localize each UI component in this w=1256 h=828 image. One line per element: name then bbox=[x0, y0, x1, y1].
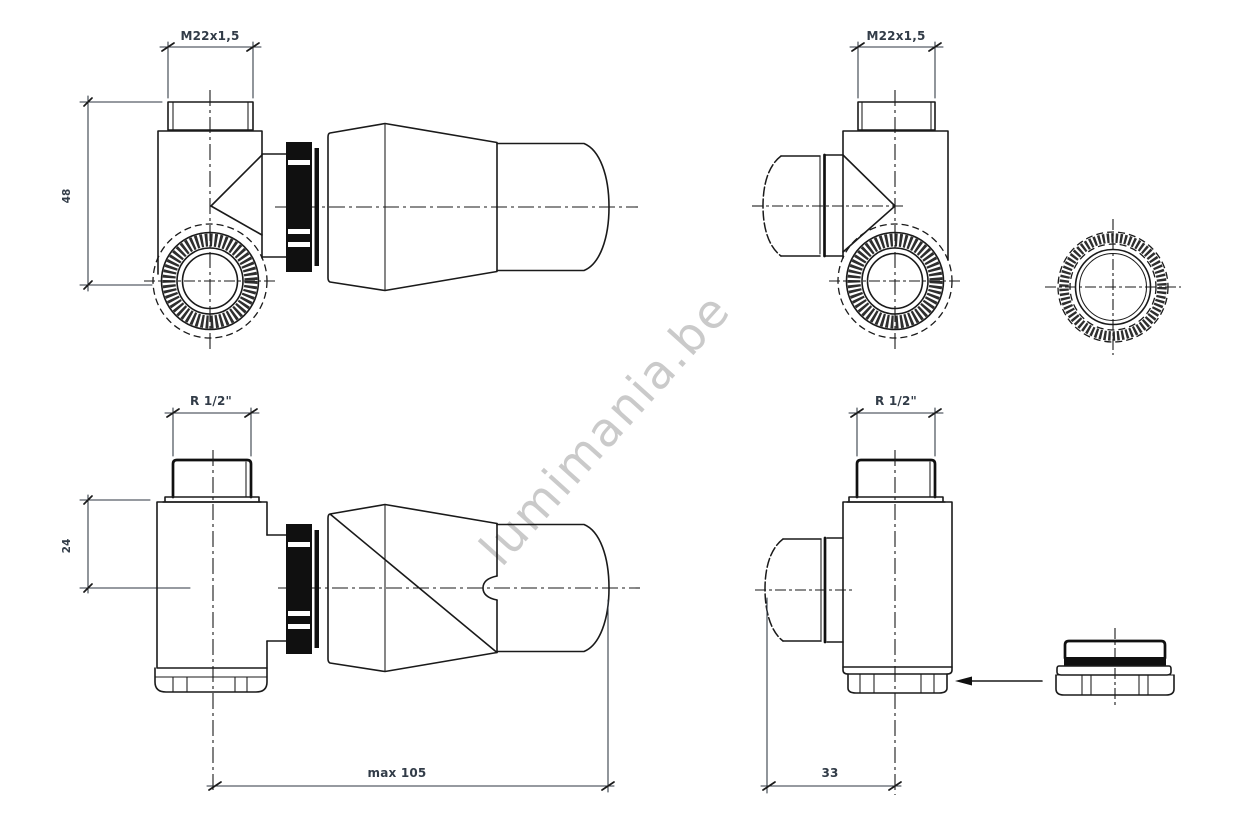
dimension-max105: max 105 bbox=[207, 600, 614, 792]
dimension-33: 33 bbox=[761, 598, 901, 793]
thread-label: R 1/2" bbox=[190, 394, 232, 408]
height-dim-label: 24 bbox=[61, 539, 73, 554]
view-bottom-right: R 1/2" 33 bbox=[755, 394, 1174, 795]
drawing-canvas: lumimania.be M22x1,5 48 bbox=[0, 0, 1256, 828]
dimension-24: 24 bbox=[61, 495, 190, 593]
dimension-m22-right: M22x1,5 bbox=[850, 29, 943, 98]
dimension-48: 48 bbox=[61, 96, 162, 291]
valve-body bbox=[158, 131, 286, 274]
valve-technical-drawing: lumimania.be M22x1,5 48 bbox=[0, 0, 1256, 828]
adapter-nut-part bbox=[1056, 628, 1174, 706]
valve-body bbox=[157, 502, 286, 668]
thread-label: M22x1,5 bbox=[866, 29, 925, 43]
union-nut-front-view bbox=[1045, 219, 1181, 355]
view-top-left: M22x1,5 48 bbox=[61, 29, 638, 350]
thread-label: M22x1,5 bbox=[180, 29, 239, 43]
offset-dim-label: 33 bbox=[821, 766, 838, 780]
dimension-r12-left: R 1/2" bbox=[165, 394, 259, 456]
union-nut bbox=[155, 668, 267, 692]
height-dim-label: 48 bbox=[61, 189, 73, 204]
length-dim-label: max 105 bbox=[368, 766, 427, 780]
thread-stub bbox=[163, 460, 261, 502]
union-nut bbox=[843, 667, 952, 693]
thread-stub bbox=[847, 460, 945, 502]
thread-label: R 1/2" bbox=[875, 394, 917, 408]
thread-stub bbox=[858, 102, 935, 130]
valve-seat-cone bbox=[211, 155, 262, 235]
locking-ring bbox=[286, 524, 319, 654]
view-top-right: M22x1,5 bbox=[752, 29, 961, 350]
valve-body bbox=[843, 502, 952, 667]
watermark-text: lumimania.be bbox=[469, 283, 741, 577]
dimension-m22-left: M22x1,5 bbox=[160, 29, 261, 98]
assembly-arrow-icon bbox=[955, 677, 1042, 686]
dimension-r12-right: R 1/2" bbox=[849, 394, 943, 456]
